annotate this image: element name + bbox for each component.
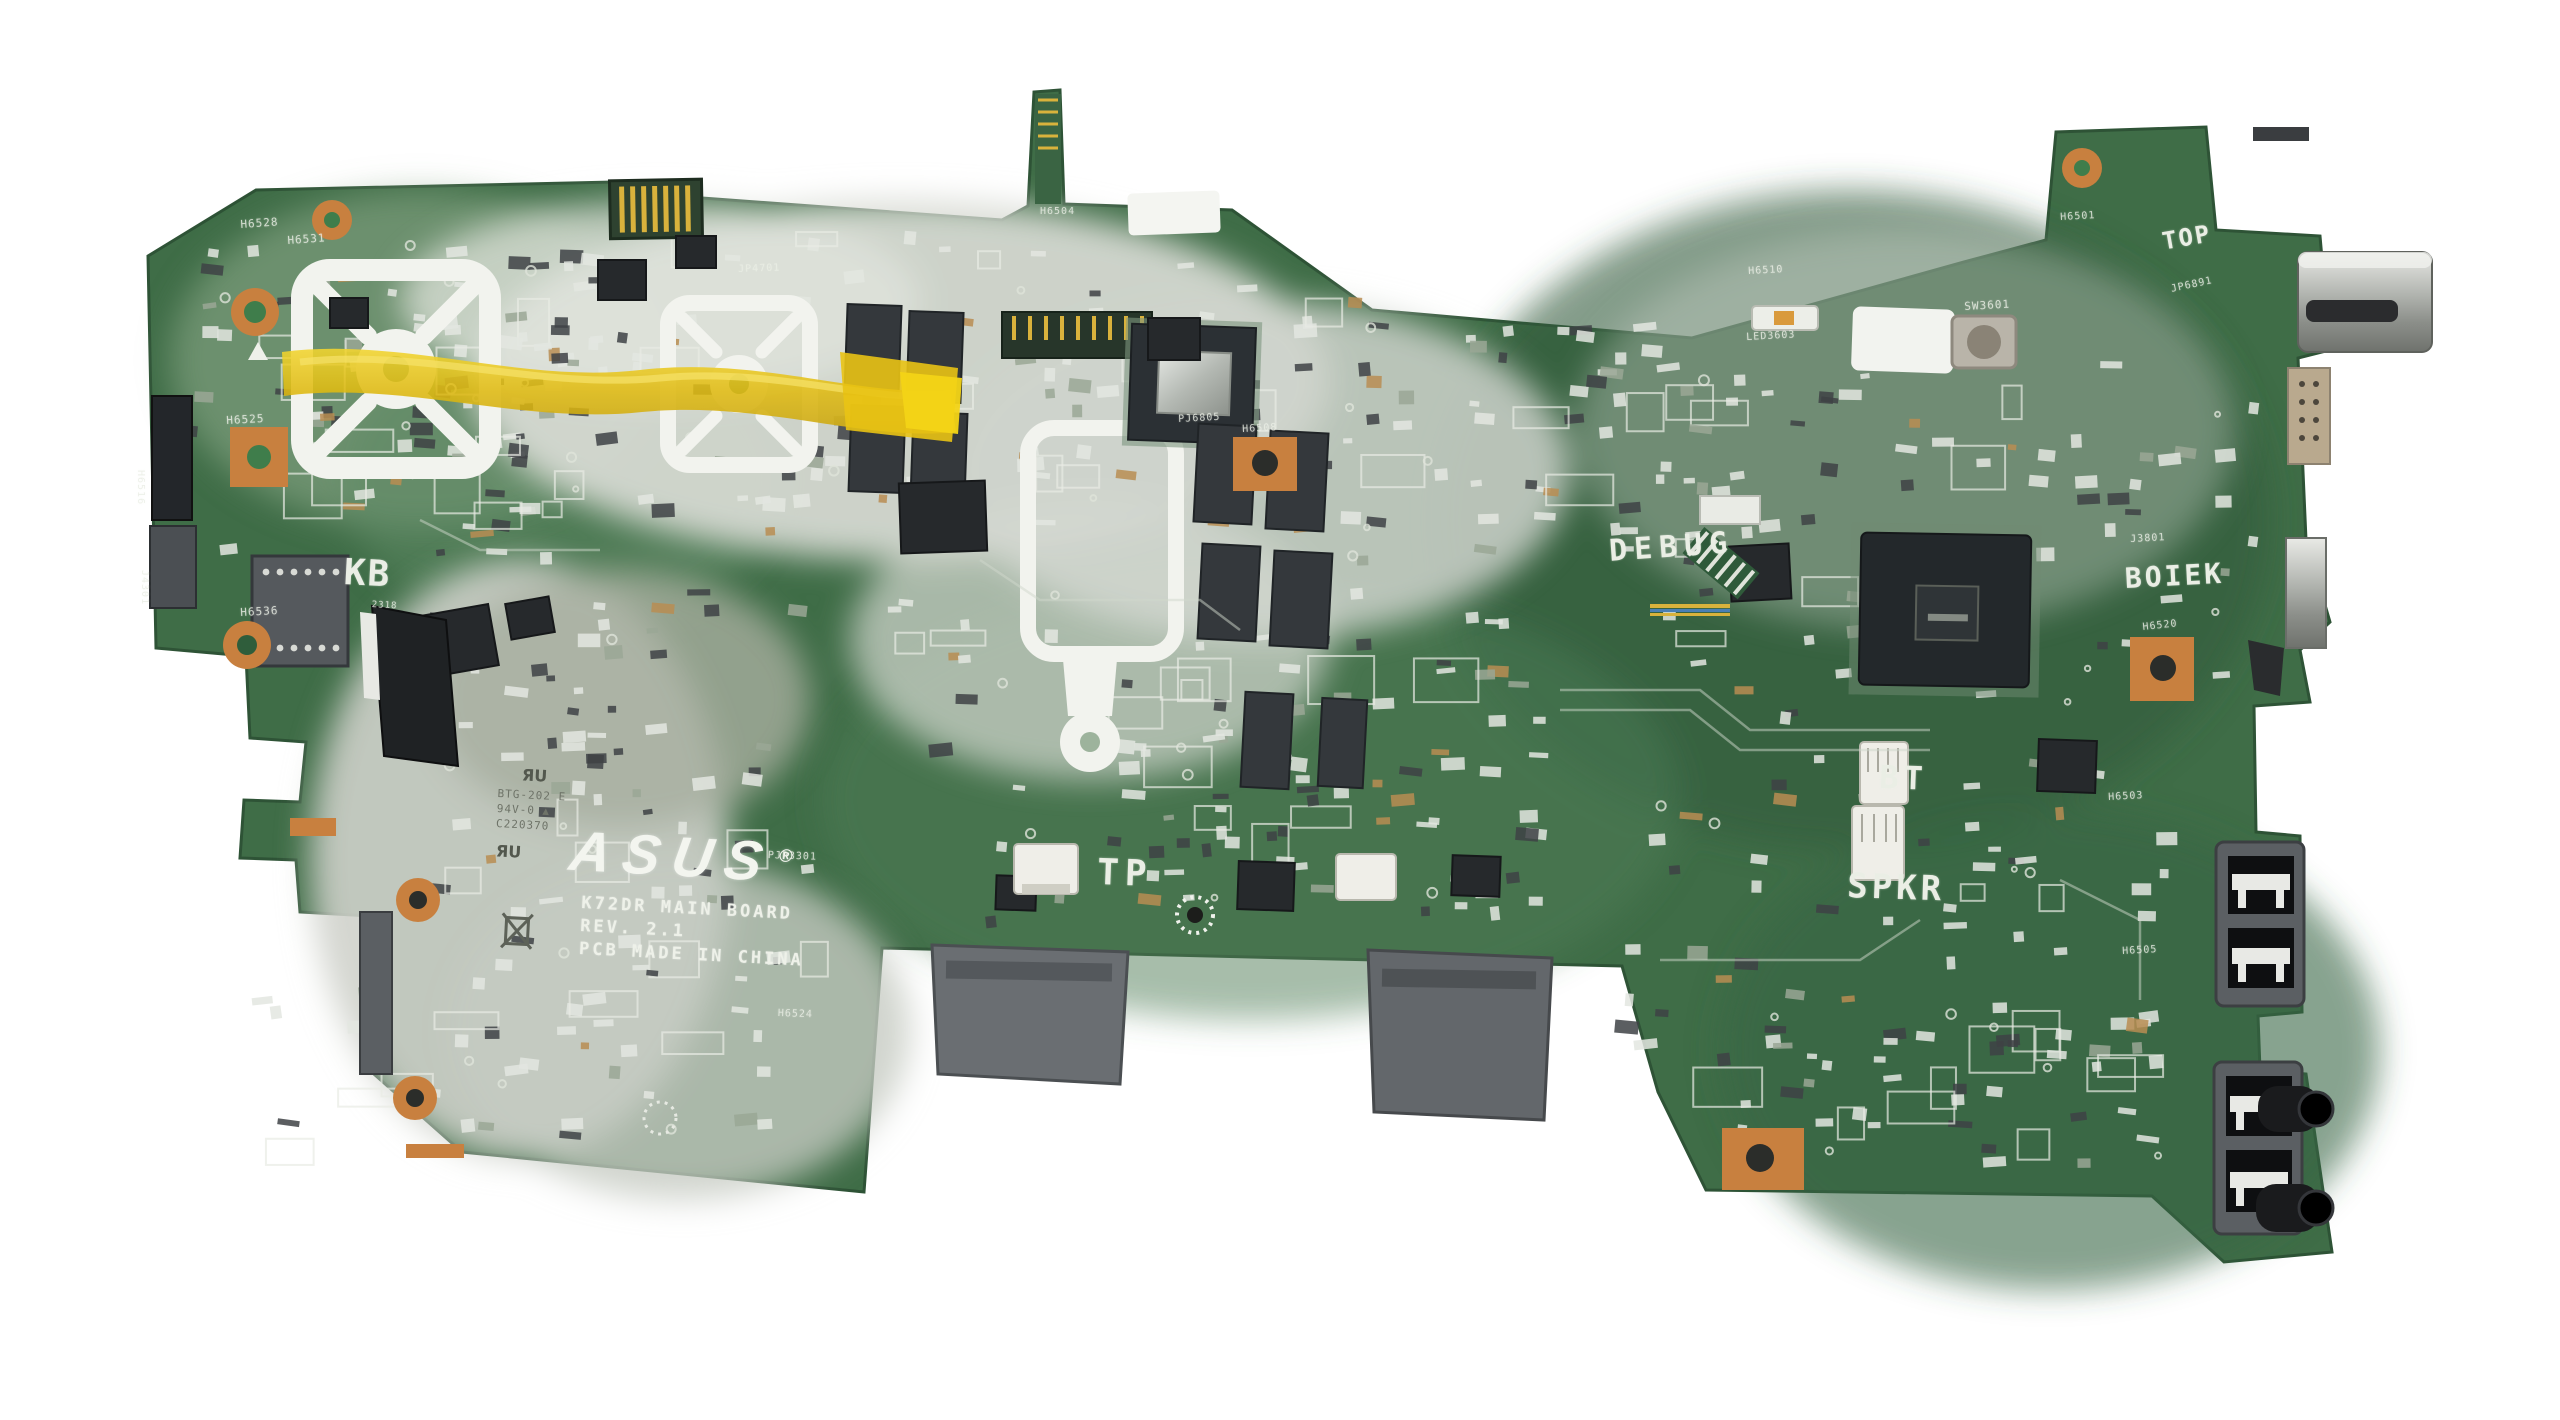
power-switch (1952, 316, 2016, 368)
motherboard-illustration (0, 0, 2560, 1420)
touchpad-connector (1014, 844, 1078, 894)
white-sticker-small (1127, 190, 1220, 235)
edge-connector-top (2253, 127, 2309, 141)
vga-port (2288, 368, 2330, 464)
dc-power-jack (2298, 252, 2432, 352)
speaker-connector (1852, 806, 1904, 880)
ffc-connector-small (1336, 854, 1396, 900)
weee-symbol (501, 913, 533, 949)
battery-connector (609, 179, 702, 239)
lvds-connector (150, 396, 196, 608)
sata-edge-connector (360, 912, 392, 1074)
usb-stack-1 (2216, 842, 2304, 1006)
led-component (1752, 306, 1818, 330)
board-tab-connector (1035, 94, 1061, 204)
white-sticker-large (1851, 306, 1955, 374)
bluetooth-connector (1860, 742, 1908, 804)
motherboard-photo-canvas: ASUS® K72DR MAIN BOARD REV. 2.1 PCB MADE… (0, 0, 2560, 1420)
chipset-chip (1849, 522, 2042, 697)
hdmi-port (2286, 538, 2326, 648)
